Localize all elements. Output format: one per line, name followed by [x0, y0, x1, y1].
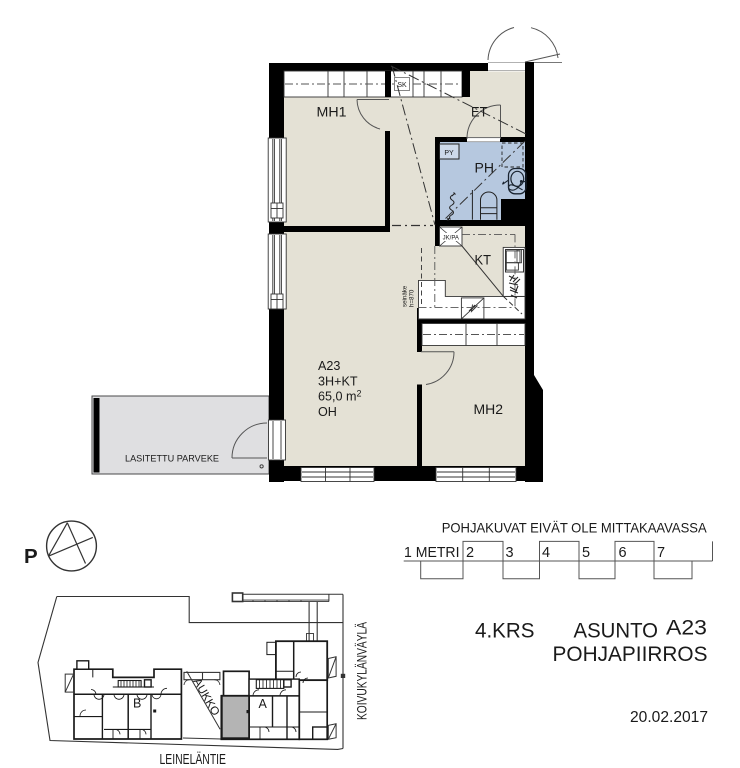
svg-text:20.02.2017: 20.02.2017	[630, 709, 708, 726]
svg-text:h=870: h=870	[409, 289, 416, 307]
svg-text:PY: PY	[444, 150, 454, 157]
svg-text:LASITETTU PARVEKE: LASITETTU PARVEKE	[125, 454, 219, 464]
svg-text:3: 3	[506, 545, 514, 561]
svg-text:SK: SK	[397, 82, 407, 89]
svg-text:seinäke: seinäke	[402, 285, 409, 307]
svg-text:A23: A23	[318, 359, 340, 373]
svg-text:6: 6	[619, 545, 627, 561]
svg-text:B: B	[133, 697, 141, 711]
svg-text:POHJAPIIRROS: POHJAPIIRROS	[553, 643, 708, 666]
svg-text:ASUNTO: ASUNTO	[574, 620, 659, 643]
svg-text:65,0 m2: 65,0 m2	[318, 389, 362, 404]
svg-text:4.KRS: 4.KRS	[475, 620, 535, 643]
svg-text:A23: A23	[666, 616, 707, 640]
svg-text:KT: KT	[475, 253, 492, 268]
svg-text:7: 7	[657, 545, 665, 561]
svg-text:2: 2	[466, 545, 474, 561]
svg-text:5: 5	[582, 545, 590, 561]
svg-text:POHJAKUVAT EIVÄT OLE MITTAKAAV: POHJAKUVAT EIVÄT OLE MITTAKAAVASSA	[442, 520, 708, 536]
svg-text:MH2: MH2	[474, 402, 504, 417]
svg-text:AUKKO: AUKKO	[190, 677, 221, 719]
svg-text:4: 4	[542, 545, 550, 561]
svg-text:LEINELÄNTIE: LEINELÄNTIE	[160, 751, 227, 768]
svg-text:ET: ET	[471, 105, 488, 120]
svg-text:3H+KT: 3H+KT	[318, 374, 358, 388]
svg-text:A: A	[259, 697, 268, 711]
svg-text:OH: OH	[318, 405, 337, 419]
svg-text:P: P	[24, 545, 38, 568]
svg-text:MH1: MH1	[317, 105, 347, 120]
svg-text:KOIVUKYLÄNVÄYLÄ: KOIVUKYLÄNVÄYLÄ	[355, 622, 370, 720]
svg-text:JK/PA: JK/PA	[443, 236, 459, 242]
svg-text:1 METRI: 1 METRI	[404, 545, 460, 561]
svg-text:PH: PH	[475, 161, 495, 176]
